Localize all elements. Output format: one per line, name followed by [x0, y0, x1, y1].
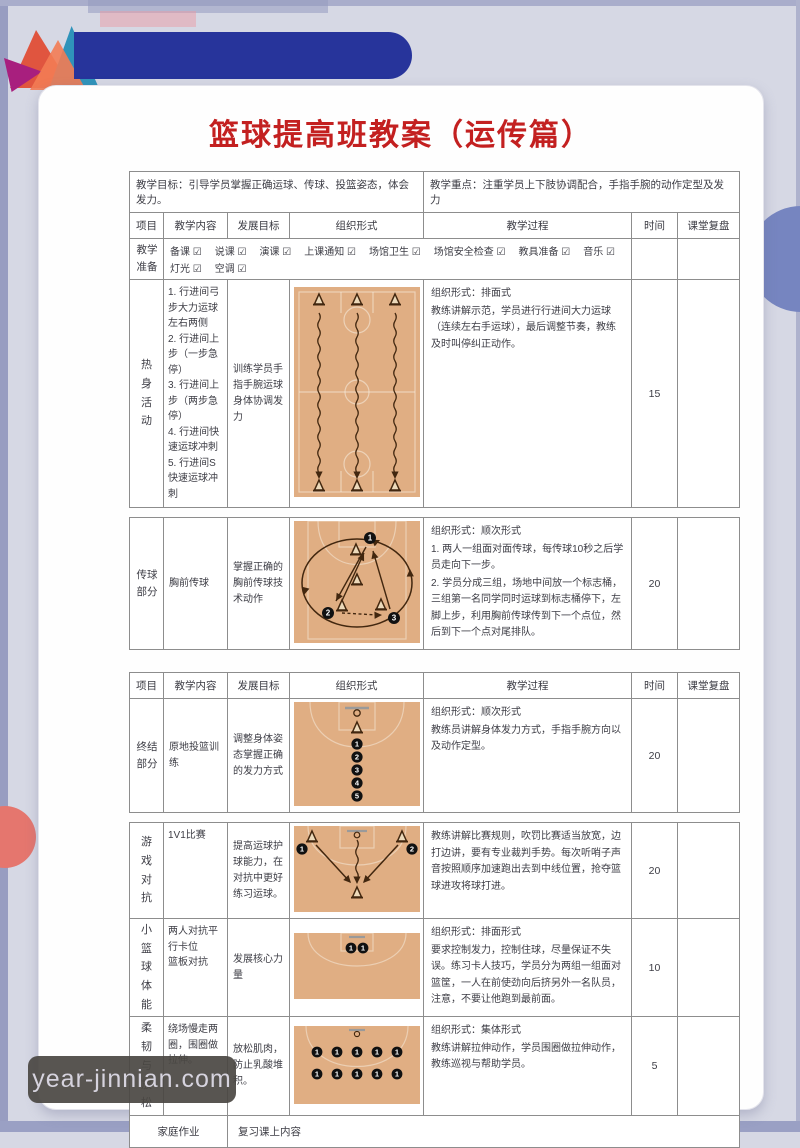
col-header-organization: 组织形式 — [290, 673, 424, 699]
svg-text:2: 2 — [325, 609, 330, 618]
svg-text:1: 1 — [394, 1047, 398, 1056]
warmup-diagram-cell — [290, 280, 424, 508]
prep-checklist: 备课 ☑ 说课 ☑ 演课 ☑ 上课通知 ☑ 场馆卫生 ☑ 场馆安全检查 ☑ 教具… — [164, 239, 632, 280]
deco-circle-left — [0, 806, 36, 868]
svg-text:1: 1 — [334, 1047, 338, 1056]
game-diagram-cell: 1 2 — [290, 823, 424, 919]
player-3-marker: 3 — [388, 612, 400, 624]
col-header-content: 教学内容 — [164, 213, 228, 239]
ending-time: 20 — [632, 699, 678, 813]
frame-right-border — [796, 0, 800, 1132]
fitness-review-empty — [678, 919, 740, 1017]
court-diagram-dribble-lanes — [294, 287, 420, 497]
prep-item: 音乐 ☑ — [583, 243, 615, 258]
table-ending: 项目 教学内容 发展目标 组织形式 教学过程 时间 课堂复盘 终结部分 原地投篮… — [129, 672, 740, 813]
svg-text:1: 1 — [354, 1047, 358, 1056]
relax-goal: 放松肌肉，防止乳酸堆积。 — [228, 1017, 290, 1115]
col-header-goal: 发展目标 — [228, 673, 290, 699]
prep-row: 教学准备 备课 ☑ 说课 ☑ 演课 ☑ 上课通知 ☑ 场馆卫生 ☑ 场馆安全检查… — [130, 239, 740, 280]
teaching-focus: 教学重点：注重学员上下肢协调配合，手指手腕的动作定型及发力 — [424, 172, 740, 213]
svg-text:1: 1 — [394, 1069, 398, 1078]
col-header-goal: 发展目标 — [228, 213, 290, 239]
col-header-project: 项目 — [130, 213, 164, 239]
svg-text:1: 1 — [348, 944, 352, 953]
passing-content: 胸前传球 — [164, 518, 228, 650]
warmup-row: 热身活动 1. 行进间弓步大力运球左右两侧 2. 行进间上步（一步急停） 3. … — [130, 280, 740, 508]
prep-item: 场馆安全检查 ☑ — [434, 243, 506, 258]
passing-process: 组织形式：顺次形式 1. 两人一组面对面传球，每传球10秒之后学员走向下一步。 … — [424, 518, 632, 650]
passing-process-line: 2. 学员分成三组，场地中间放一个标志桶，三组第一名同学同时运球到标志桶停下，左… — [431, 576, 624, 642]
prep-review-empty — [678, 239, 740, 280]
game-review-empty — [678, 823, 740, 919]
fitness-content: 两人对抗平行卡位 篮板对抗 — [164, 919, 228, 1017]
svg-text:1: 1 — [374, 1069, 378, 1078]
ending-process-line: 教练员讲解身体发力方式，手指手腕方向以及动作定型。 — [431, 723, 624, 756]
fitness-content-item: 两人对抗平行卡位 — [168, 924, 223, 955]
warmup-content-item: 3. 行进间上步（两步急停） — [168, 378, 223, 425]
passing-review-empty — [678, 518, 740, 650]
ending-review-empty — [678, 699, 740, 813]
svg-text:3: 3 — [354, 766, 358, 775]
relax-process-line: 组织形式：集体形式 — [431, 1023, 624, 1040]
svg-text:1: 1 — [299, 845, 303, 854]
deco-blue-bar — [74, 32, 412, 79]
svg-text:1: 1 — [314, 1047, 318, 1056]
col-header-organization: 组织形式 — [290, 213, 424, 239]
lesson-plan-page: 篮球提高班教案（运传篇） 教学目标：引导学员掌握正确运球、传球、投篮姿态，体会发… — [38, 85, 764, 1110]
passing-goal: 掌握正确的胸前传球技术动作 — [228, 518, 290, 650]
watermark-text: year-jinnian.com — [32, 1065, 231, 1094]
fitness-goal: 发展核心力量 — [228, 919, 290, 1017]
warmup-review-empty — [678, 280, 740, 508]
warmup-time: 15 — [632, 280, 678, 508]
passing-time: 20 — [632, 518, 678, 650]
col-header-review: 课堂复盘 — [678, 213, 740, 239]
fitness-time: 10 — [632, 919, 678, 1017]
player-3-marker: 3 — [351, 764, 362, 775]
col-header-content: 教学内容 — [164, 673, 228, 699]
passing-diagram-cell: 1 2 3 — [290, 518, 424, 650]
fitness-row: 小篮球体能 两人对抗平行卡位 篮板对抗 发展核心力量 — [130, 919, 740, 1017]
watermark-badge: year-jinnian.com — [28, 1056, 236, 1103]
ending-diagram-cell: 1 2 3 4 5 — [290, 699, 424, 813]
svg-text:1: 1 — [360, 944, 364, 953]
col-header-time: 时间 — [632, 213, 678, 239]
fitness-process-line: 要求控制发力，控制住球，尽量保证不失误。练习卡人技巧，学员分为两组一组面对篮筐，… — [431, 943, 624, 1009]
passing-process-line: 组织形式：顺次形式 — [431, 524, 624, 541]
player-2-marker: 2 — [322, 607, 334, 619]
warmup-process-line: 教练讲解示范，学员进行行进间大力运球（连续左右手运球），最后调整节奏，教练及时叫… — [431, 304, 624, 354]
svg-text:5: 5 — [354, 792, 358, 801]
court-diagram-1v1: 1 2 — [294, 826, 420, 912]
court-diagram-stretch-circle: 11111 11111 — [294, 1026, 420, 1104]
prep-item: 说课 ☑ — [215, 243, 247, 258]
svg-text:2: 2 — [354, 753, 358, 762]
prep-item: 空调 ☑ — [215, 260, 247, 275]
prep-item: 教具准备 ☑ — [519, 243, 571, 258]
lesson-plan-tables: 教学目标：引导学员掌握正确运球、传球、投篮姿态，体会发力。 教学重点：注重学员上… — [129, 171, 741, 1148]
warmup-process: 组织形式：排面式 教练讲解示范，学员进行行进间大力运球（连续左右手运球），最后调… — [424, 280, 632, 508]
prep-item: 灯光 ☑ — [170, 260, 202, 275]
game-content: 1V1比赛 — [164, 823, 228, 919]
fitness-process: 组织形式：排面形式 要求控制发力，控制住球，尽量保证不失误。练习卡人技巧，学员分… — [424, 919, 632, 1017]
fitness-diagram-cell: 1 1 — [290, 919, 424, 1017]
homework-label: 家庭作业 — [130, 1115, 228, 1147]
prep-item: 演课 ☑ — [260, 243, 292, 258]
relax-process-line: 教练讲解拉伸动作，学员围圈做拉伸动作，教练巡视与帮助学员。 — [431, 1041, 624, 1074]
svg-text:1: 1 — [354, 1069, 358, 1078]
player-1-marker: 1 — [351, 738, 362, 749]
court-diagram-shooting-line: 1 2 3 4 5 — [294, 702, 420, 806]
court-diagram-boxout: 1 1 — [294, 933, 420, 999]
player-2-marker: 2 — [351, 751, 362, 762]
frame-left-border — [0, 0, 8, 1132]
relax-diagram-cell: 11111 11111 — [290, 1017, 424, 1115]
fitness-process-line: 组织形式：排面形式 — [431, 925, 624, 942]
svg-text:2: 2 — [409, 845, 413, 854]
game-row: 游戏对抗 1V1比赛 提高运球护球能力，在对抗中更好练习运球。 — [130, 823, 740, 919]
ending-content: 原地投篮训练 — [164, 699, 228, 813]
ending-process-line: 组织形式：顺次形式 — [431, 705, 624, 722]
warmup-content-item: 1. 行进间弓步大力运球左右两侧 — [168, 285, 223, 332]
game-label: 游戏对抗 — [130, 823, 164, 919]
svg-text:1: 1 — [374, 1047, 378, 1056]
passing-row: 传球部分 胸前传球 掌握正确的胸前传球技术动作 — [130, 518, 740, 650]
warmup-goal: 训练学员手指手腕运球身体协调发力 — [228, 280, 290, 508]
svg-text:1: 1 — [314, 1069, 318, 1078]
warmup-process-line: 组织形式：排面式 — [431, 286, 624, 303]
prep-item: 上课通知 ☑ — [304, 243, 356, 258]
table-main: 教学目标：引导学员掌握正确运球、传球、投篮姿态，体会发力。 教学重点：注重学员上… — [129, 171, 740, 508]
svg-text:3: 3 — [391, 614, 396, 623]
relax-time: 5 — [632, 1017, 678, 1115]
col-header-process: 教学过程 — [424, 213, 632, 239]
warmup-content-item: 4. 行进间快速运球冲刺 — [168, 425, 223, 456]
column-header-row-2: 项目 教学内容 发展目标 组织形式 教学过程 时间 课堂复盘 — [130, 673, 740, 699]
homework-row: 家庭作业 复习课上内容 — [130, 1115, 740, 1147]
svg-text:1: 1 — [334, 1069, 338, 1078]
col-header-process: 教学过程 — [424, 673, 632, 699]
warmup-content: 1. 行进间弓步大力运球左右两侧 2. 行进间上步（一步急停） 3. 行进间上步… — [164, 280, 228, 508]
relax-review-empty — [678, 1017, 740, 1115]
game-process-line: 教练讲解比赛规则，吹罚比赛适当放宽，边打边讲，要有专业裁判手势。每次听哨子声音按… — [431, 829, 624, 895]
teaching-objective: 教学目标：引导学员掌握正确运球、传球、投篮姿态，体会发力。 — [130, 172, 424, 213]
warmup-content-item: 2. 行进间上步（一步急停） — [168, 332, 223, 379]
warmup-label: 热身活动 — [130, 280, 164, 508]
col-header-time: 时间 — [632, 673, 678, 699]
deco-pink-streak — [100, 11, 196, 27]
game-goal: 提高运球护球能力，在对抗中更好练习运球。 — [228, 823, 290, 919]
player-1-marker: 1 — [296, 843, 307, 854]
game-time: 20 — [632, 823, 678, 919]
prep-time-empty — [632, 239, 678, 280]
column-header-row: 项目 教学内容 发展目标 组织形式 教学过程 时间 课堂复盘 — [130, 213, 740, 239]
svg-text:1: 1 — [367, 534, 372, 543]
homework-value: 复习课上内容 — [228, 1115, 740, 1147]
ending-label: 终结部分 — [130, 699, 164, 813]
table-passing: 传球部分 胸前传球 掌握正确的胸前传球技术动作 — [129, 517, 740, 650]
warmup-content-item: 5. 行进间S快速运球冲刺 — [168, 456, 223, 503]
ending-goal: 调整身体姿态掌握正确的发力方式 — [228, 699, 290, 813]
ending-row: 终结部分 原地投篮训练 调整身体姿态掌握正确的发力方式 1 2 — [130, 699, 740, 813]
prep-item: 备课 ☑ — [170, 243, 202, 258]
court-diagram-passing-triangle: 1 2 3 — [294, 521, 420, 643]
prep-label: 教学准备 — [130, 239, 164, 280]
col-header-project: 项目 — [130, 673, 164, 699]
game-process: 教练讲解比赛规则，吹罚比赛适当放宽，边打边讲，要有专业裁判手势。每次听哨子声音按… — [424, 823, 632, 919]
meta-row: 教学目标：引导学员掌握正确运球、传球、投篮姿态，体会发力。 教学重点：注重学员上… — [130, 172, 740, 213]
fitness-label: 小篮球体能 — [130, 919, 164, 1017]
ending-process: 组织形式：顺次形式 教练员讲解身体发力方式，手指手腕方向以及动作定型。 — [424, 699, 632, 813]
col-header-review: 课堂复盘 — [678, 673, 740, 699]
passing-process-line: 1. 两人一组面对面传球，每传球10秒之后学员走向下一步。 — [431, 542, 624, 575]
page-title: 篮球提高班教案（运传篇） — [39, 110, 763, 154]
fitness-content-item: 篮板对抗 — [168, 955, 223, 971]
player-2-marker: 2 — [406, 843, 417, 854]
svg-text:1: 1 — [354, 740, 358, 749]
relax-process: 组织形式：集体形式 教练讲解拉伸动作，学员围圈做拉伸动作，教练巡视与帮助学员。 — [424, 1017, 632, 1115]
player-4-marker: 4 — [351, 777, 362, 788]
player-5-marker: 5 — [351, 790, 362, 801]
player-1-marker: 1 — [364, 532, 376, 544]
prep-item: 场馆卫生 ☑ — [369, 243, 421, 258]
passing-label: 传球部分 — [130, 518, 164, 650]
